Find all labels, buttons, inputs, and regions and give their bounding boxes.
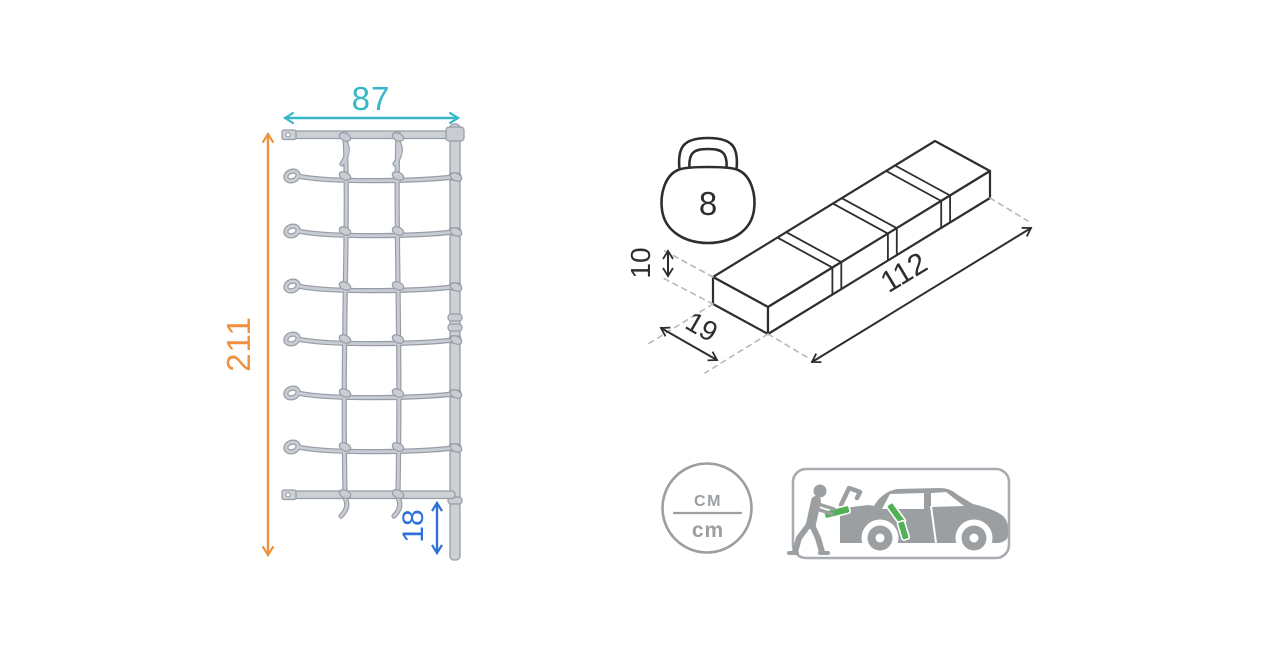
package-diagram: 8 112 19 10 bbox=[625, 138, 1031, 373]
net-height-label: 211 bbox=[220, 316, 257, 372]
package-height-label: 10 bbox=[625, 247, 656, 278]
car-wheel-front bbox=[956, 520, 993, 557]
product-dimensions-infographic: 87 211 bbox=[0, 0, 1280, 649]
units-badge: CM cm bbox=[663, 464, 752, 553]
net-top-bar bbox=[282, 127, 464, 141]
units-bottom-label: cm bbox=[692, 519, 724, 542]
infographic-svg: 87 211 bbox=[0, 0, 1280, 649]
package-weight-label: 8 bbox=[699, 185, 717, 222]
net-width-label: 87 bbox=[352, 80, 391, 117]
package-depth-label: 19 bbox=[681, 306, 723, 348]
package-box bbox=[713, 141, 990, 334]
car-wheel-rear bbox=[862, 520, 899, 557]
car-loading-badge bbox=[789, 469, 1009, 558]
net-bottom-bar bbox=[282, 490, 455, 500]
kettlebell-icon: 8 bbox=[662, 138, 755, 243]
net-ropes bbox=[286, 133, 453, 516]
net-diagram: 87 211 bbox=[220, 80, 464, 560]
units-top-label: CM bbox=[694, 493, 722, 510]
pole-offset-label: 18 bbox=[397, 509, 430, 542]
